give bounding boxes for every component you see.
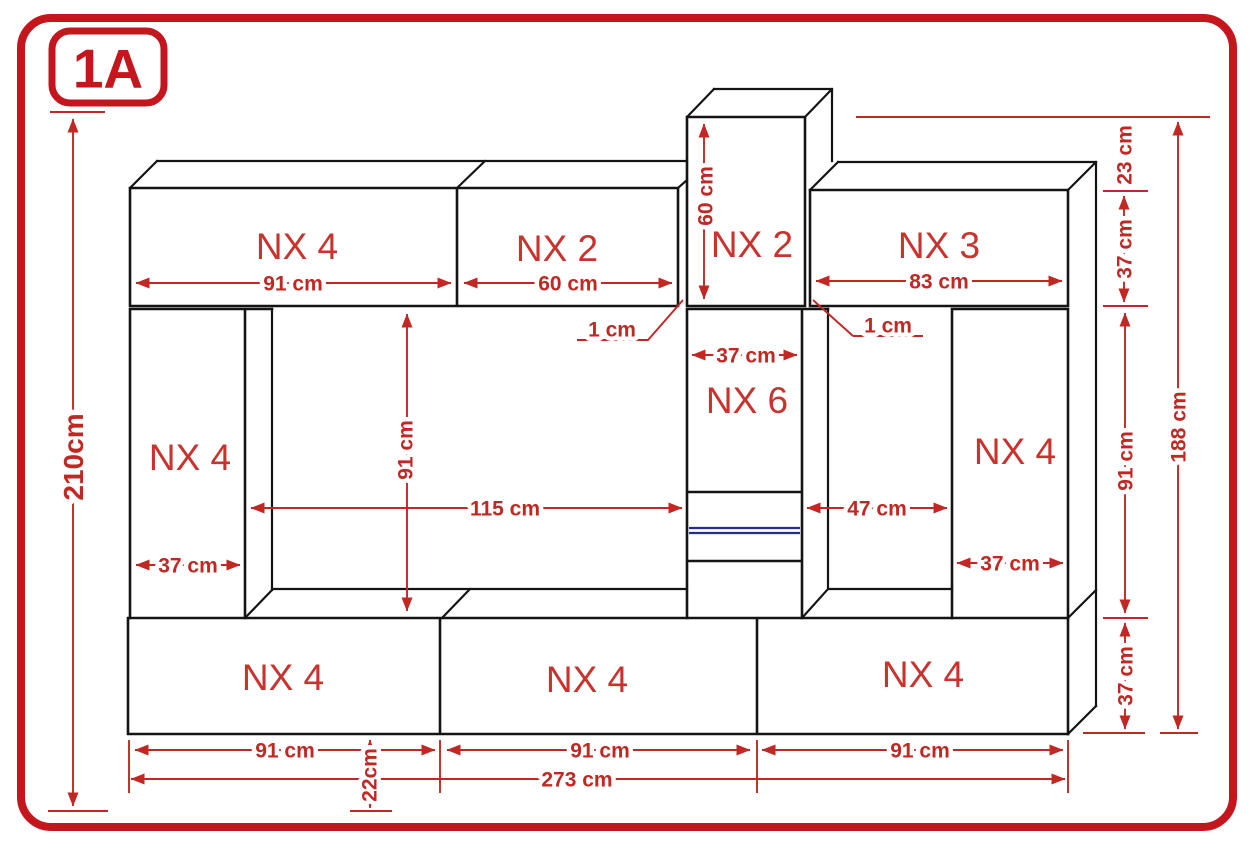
dim-bottom-left-width: 91 cm <box>255 739 315 762</box>
dim-inner-left-width: 115 cm <box>470 497 540 520</box>
furniture-dimension-diagram: 1A <box>0 0 1252 856</box>
dim-right-inner-height: 91 cm <box>1114 431 1137 491</box>
dim-total-height: 210cm <box>58 413 89 500</box>
cabinet-label-top-right: NX 3 <box>898 225 980 266</box>
cabinet-label-middle-column: NX 6 <box>706 380 788 421</box>
dim-middle-column-width: 37 cm <box>716 344 776 367</box>
dim-top-row-height: 37 cm <box>1113 219 1136 279</box>
cabinet-label-bottom-right: NX 4 <box>882 654 964 695</box>
cabinet-label-left-column: NX 4 <box>149 437 231 478</box>
diagram-canvas: 1A <box>0 0 1252 856</box>
cabinet-label-bottom-middle: NX 4 <box>546 659 628 700</box>
cabinet-label-right-column: NX 4 <box>974 431 1056 472</box>
cabinet-label-top-middle: NX 2 <box>516 228 598 269</box>
dim-plinth-height: 22cm <box>358 748 381 802</box>
dim-wall-height: 188 cm <box>1167 391 1190 462</box>
dim-inner-height: 91 cm <box>394 420 417 480</box>
dim-tower-height: 60 cm <box>694 166 717 226</box>
cabinet-label-top-left: NX 4 <box>256 226 338 267</box>
cabinet-outlines <box>128 89 1096 734</box>
dim-tower-above-offset: 23 cm <box>1113 125 1136 185</box>
cabinet-label-tower: NX 2 <box>711 224 793 265</box>
dim-total-width: 273 cm <box>541 768 612 791</box>
dim-top-right-width: 83 cm <box>909 270 969 293</box>
dim-left-column-width: 37 cm <box>158 554 218 577</box>
dim-bottom-middle-width: 91 cm <box>570 739 630 762</box>
dim-gap-left: 1 cm <box>588 318 636 341</box>
page-border <box>21 18 1233 827</box>
dim-right-column-width: 37 cm <box>980 552 1040 575</box>
dim-gap-right: 1 cm <box>864 314 912 337</box>
variant-badge: 1A <box>52 31 164 103</box>
shelf-accent-line <box>689 528 800 533</box>
dim-bottom-row-height: 37 cm <box>1114 646 1137 706</box>
dim-top-left-width: 91 cm <box>263 272 323 295</box>
variant-badge-label: 1A <box>73 37 143 99</box>
dim-bottom-right-width: 91 cm <box>890 739 950 762</box>
dim-inner-right-width: 47 cm <box>847 497 907 520</box>
cabinet-label-bottom-left: NX 4 <box>242 657 324 698</box>
dim-top-middle-width: 60 cm <box>538 272 598 295</box>
